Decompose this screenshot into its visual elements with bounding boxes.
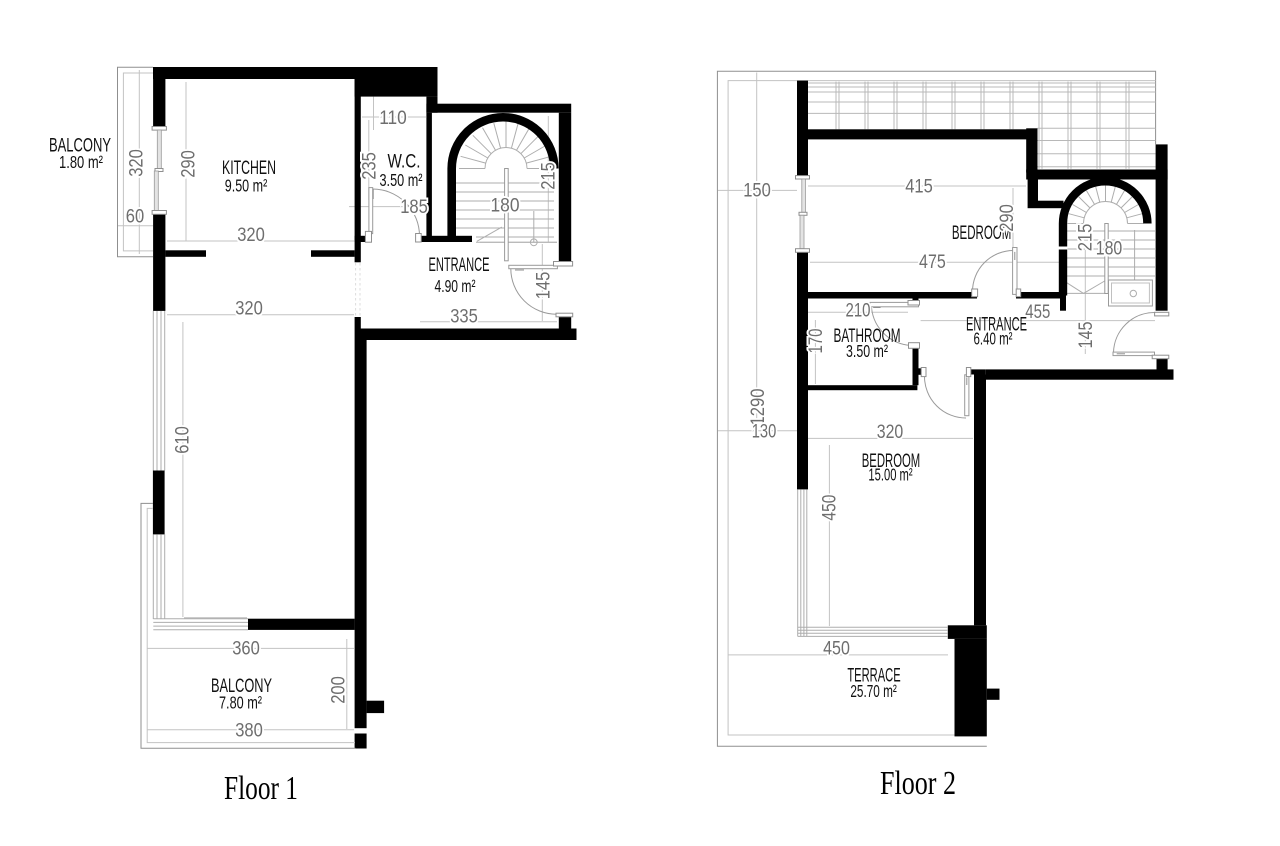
svg-text:3.50 m²: 3.50 m²	[380, 170, 423, 190]
svg-text:110: 110	[379, 108, 407, 129]
svg-text:290: 290	[997, 204, 1018, 232]
svg-text:210: 210	[846, 301, 871, 322]
svg-text:335: 335	[450, 307, 478, 328]
svg-text:60: 60	[126, 207, 144, 228]
svg-text:215: 215	[539, 162, 560, 190]
svg-text:7.80 m²: 7.80 m²	[219, 693, 262, 713]
svg-text:180: 180	[491, 196, 520, 217]
svg-text:4.90 m²: 4.90 m²	[435, 276, 476, 296]
svg-text:290: 290	[179, 150, 200, 178]
svg-text:450: 450	[823, 639, 850, 660]
svg-text:185: 185	[400, 197, 428, 218]
svg-text:320: 320	[237, 225, 265, 246]
svg-text:455: 455	[1025, 302, 1050, 323]
svg-text:1.80 m²: 1.80 m²	[59, 152, 103, 172]
svg-text:320: 320	[235, 299, 263, 320]
svg-text:25.70 m²: 25.70 m²	[850, 681, 897, 701]
svg-text:215: 215	[1076, 224, 1097, 252]
svg-text:9.50 m²: 9.50 m²	[225, 176, 268, 196]
svg-text:ENTRANCE: ENTRANCE	[429, 255, 490, 276]
svg-text:145: 145	[1076, 322, 1097, 349]
svg-text:130: 130	[752, 422, 777, 443]
svg-text:610: 610	[173, 426, 194, 454]
svg-text:145: 145	[534, 272, 555, 300]
svg-text:150: 150	[743, 181, 771, 202]
svg-text:320: 320	[877, 422, 904, 443]
svg-text:1290: 1290	[748, 389, 769, 426]
svg-text:Floor 2: Floor 2	[880, 765, 956, 802]
svg-text:170: 170	[806, 329, 827, 354]
svg-text:235: 235	[360, 152, 381, 180]
svg-text:380: 380	[235, 721, 263, 742]
svg-text:180: 180	[1096, 239, 1123, 260]
svg-text:200: 200	[328, 676, 349, 704]
svg-text:Floor 1: Floor 1	[224, 770, 298, 807]
svg-text:415: 415	[905, 177, 933, 198]
svg-text:15.00 m²: 15.00 m²	[868, 465, 912, 485]
svg-text:3.50 m²: 3.50 m²	[846, 341, 888, 361]
svg-text:360: 360	[232, 639, 260, 660]
svg-text:450: 450	[820, 495, 841, 521]
svg-text:475: 475	[919, 252, 946, 273]
svg-text:6.40 m²: 6.40 m²	[974, 329, 1013, 349]
svg-text:320: 320	[127, 149, 148, 177]
